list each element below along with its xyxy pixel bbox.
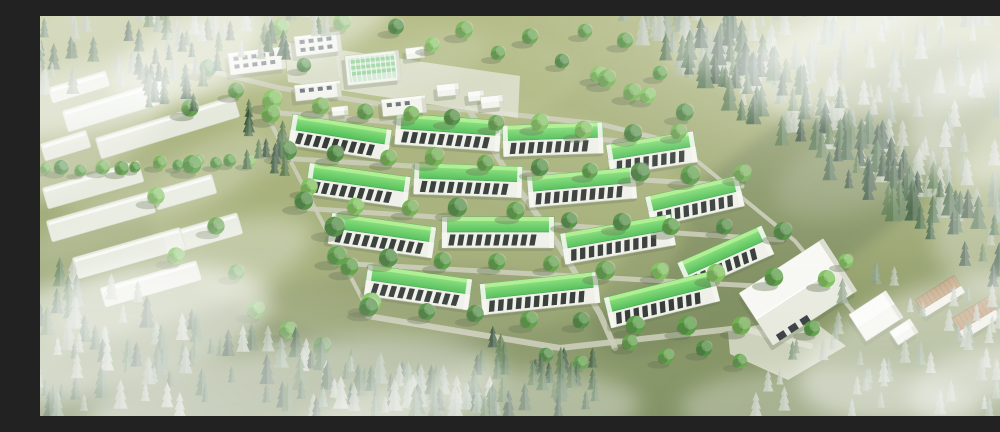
- haze-bottom-left: [40, 16, 1000, 416]
- render-canvas: [40, 16, 1000, 416]
- site-aerial-rendering: [40, 16, 1000, 416]
